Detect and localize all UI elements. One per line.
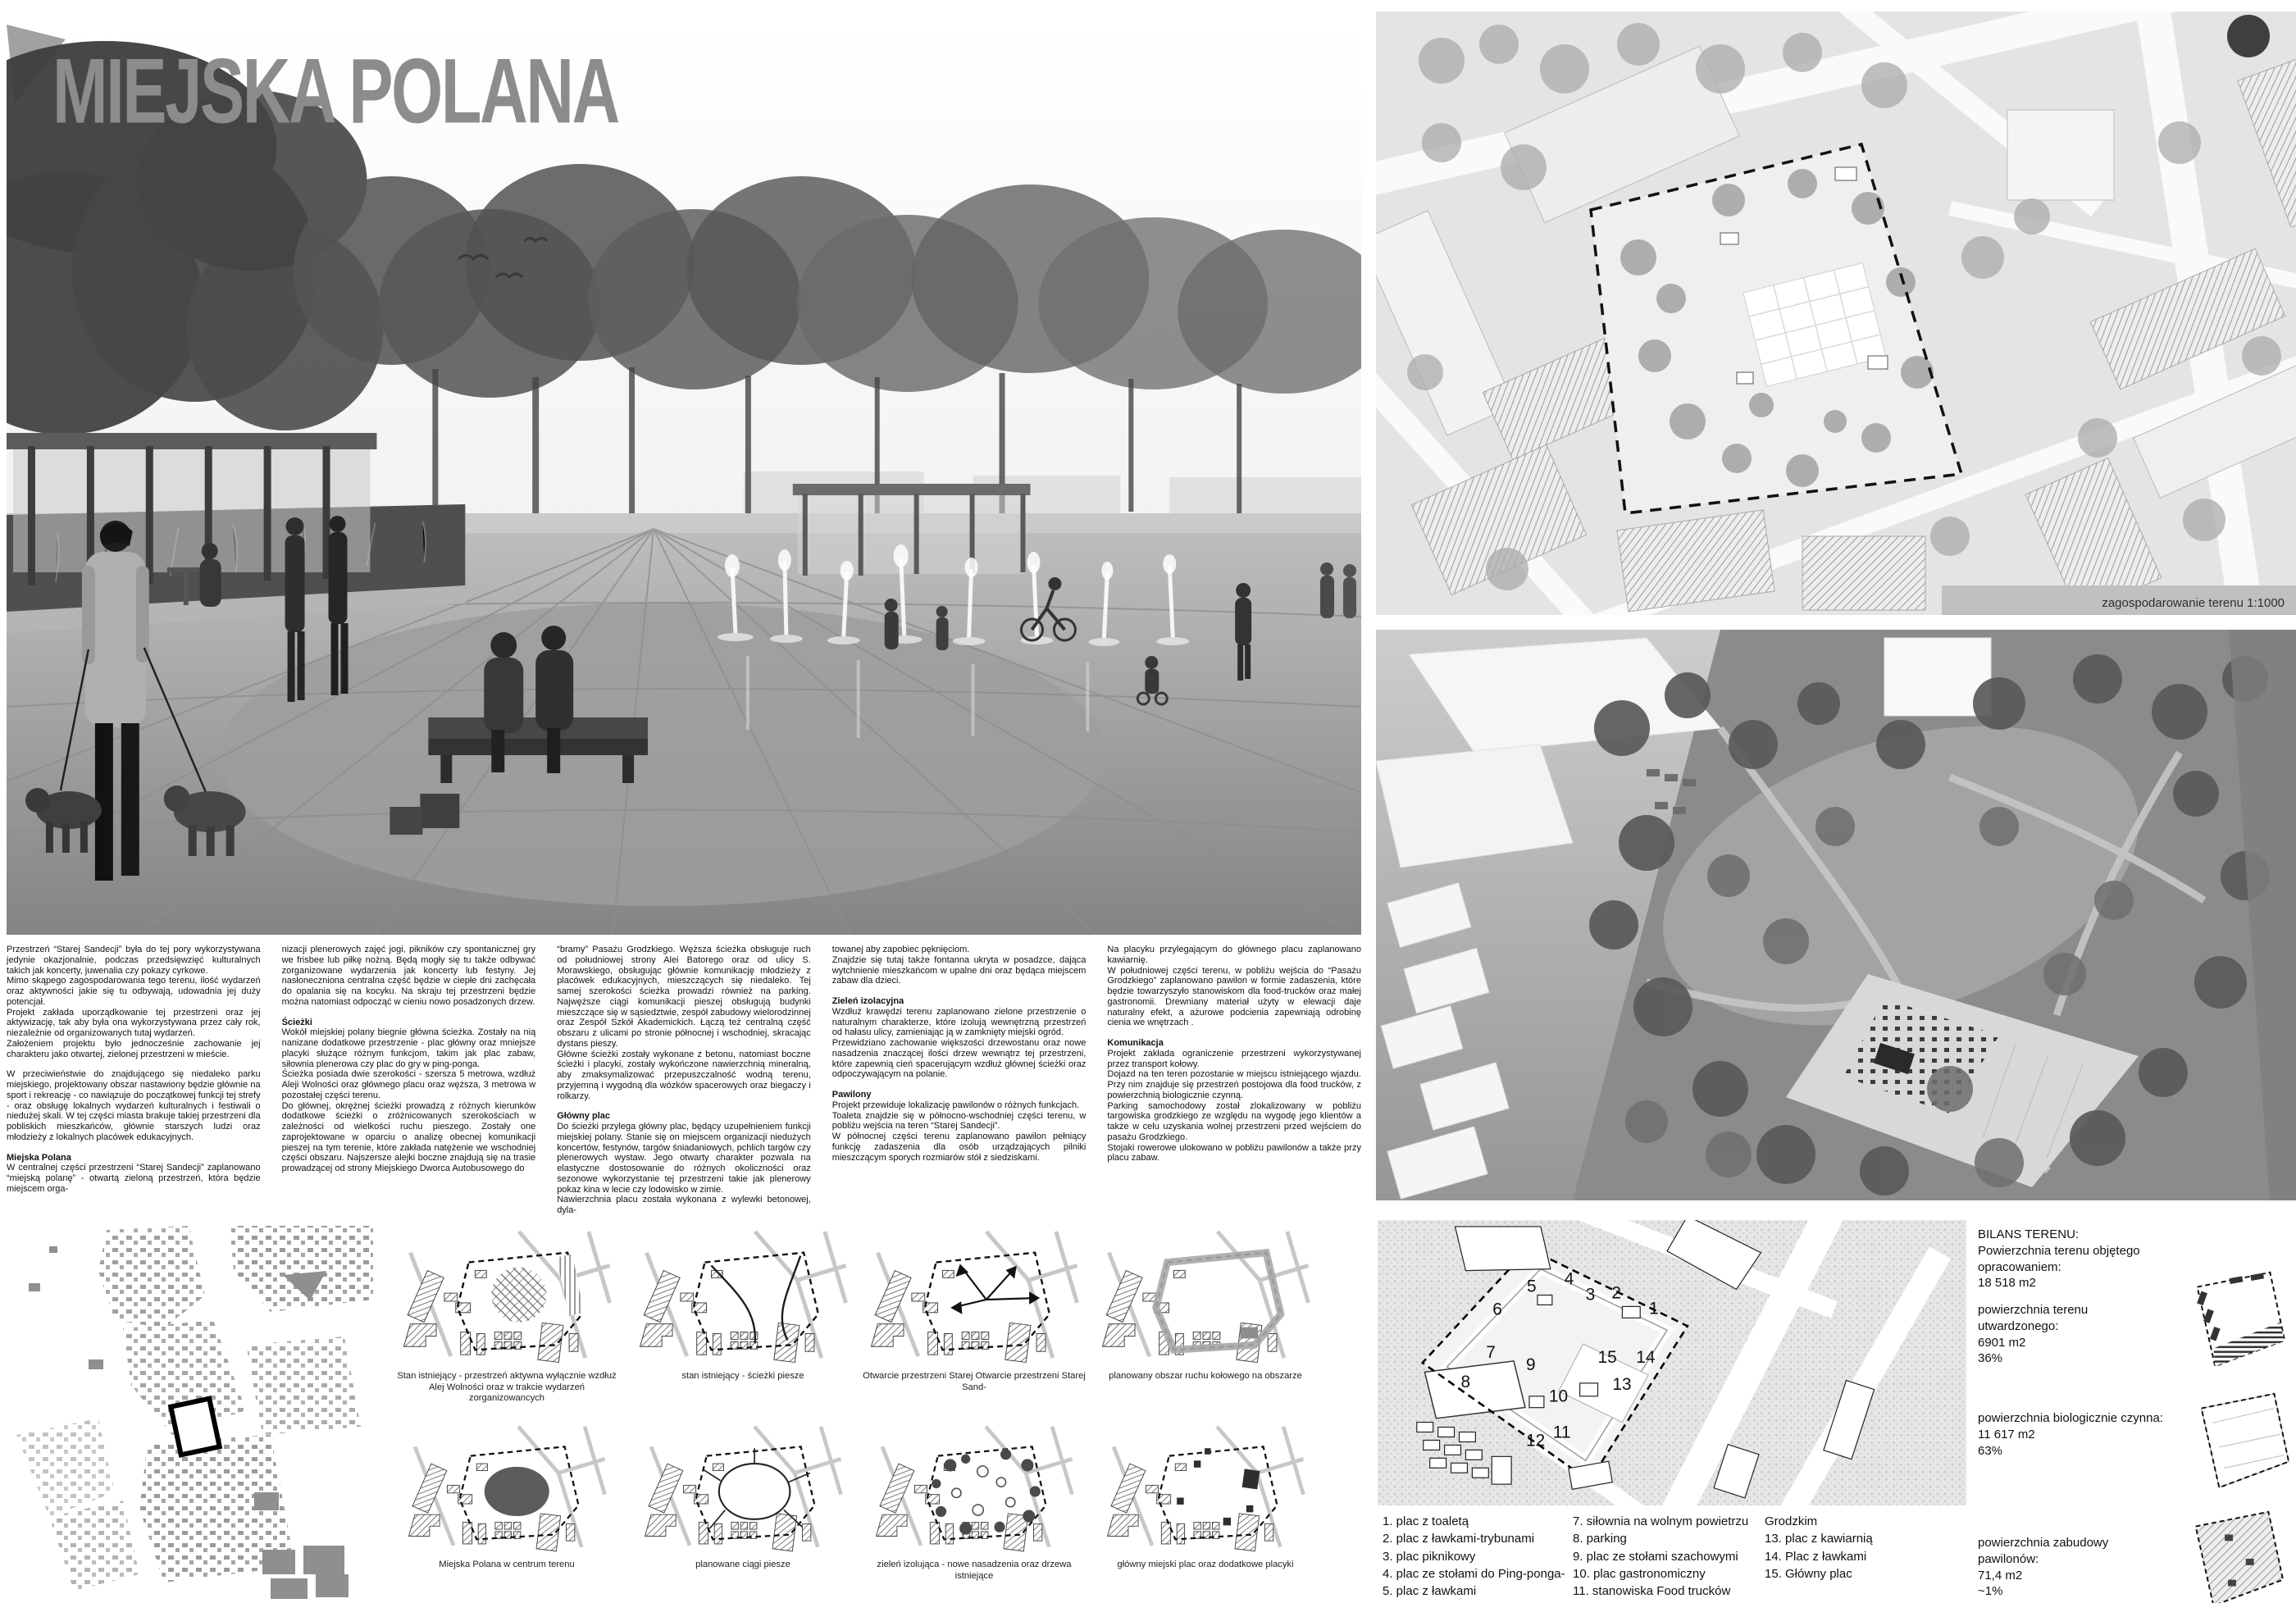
aerial-view <box>1376 630 2296 1200</box>
legend-item: 8. parking <box>1573 1530 1764 1547</box>
site-plan-label: zagospodarowanie terenu 1:1000 <box>2102 596 2285 610</box>
legend-item: 2. plac z ławkami-trybunami <box>1383 1530 1565 1547</box>
paragraph: Na placyku przylegającym do głównego pla… <box>1107 945 1361 966</box>
balance-thumb-green <box>2177 1384 2296 1497</box>
diagram-caption: Miejska Polana w centrum terenu <box>395 1560 618 1571</box>
paragraph: W centralnej części przestrzeni “Starej … <box>7 1163 261 1194</box>
paragraph: W przeciwieństwie do znajdującego się ni… <box>7 1069 261 1142</box>
paragraph: “bramy” Pasażu Grodzkiego. Węższa ścieżk… <box>557 945 811 1050</box>
legend-item: 11. stanowiska Food trucków <box>1573 1583 1764 1600</box>
paragraph: Do ścieżki przylega główny plac, będący … <box>557 1122 811 1195</box>
narrative-column-5: Na placyku przylegającym do głównego pla… <box>1107 945 1361 1223</box>
site-balance-label: powierzchnia zabudowy pawilonów: <box>1978 1535 2168 1568</box>
svg-text:3: 3 <box>1586 1285 1596 1304</box>
legend-item: 7. siłownia na wolnym powietrzu <box>1573 1513 1764 1530</box>
section-heading: Zieleń izolacyjna <box>832 996 1086 1007</box>
paragraph: Nawierzchnia placu została wykonana z wy… <box>557 1195 811 1216</box>
legend-item: 3. plac piknikowy <box>1383 1548 1565 1565</box>
site-balance-paved: powierzchnia terenu utwardzonego: 6901 m… <box>1978 1302 2168 1367</box>
site-balance-label: Powierzchnia terenu objętego opracowanie… <box>1978 1243 2168 1276</box>
diagram-caption: główny miejski plac oraz dodatkowe placy… <box>1094 1560 1317 1571</box>
analysis-diagram-plazas: główny miejski plac oraz dodatkowe placy… <box>1094 1425 1317 1571</box>
legend-item: 9. plac ze stołami szachowymi <box>1573 1548 1764 1565</box>
analysis-diagram-planned-paths: planowane ciągi piesze <box>631 1425 854 1571</box>
site-balance-value: 6901 m2 <box>1978 1335 2168 1351</box>
svg-text:10: 10 <box>1549 1387 1568 1406</box>
paragraph: Stojaki rowerowe ulokowano w pobliżu paw… <box>1107 1143 1361 1164</box>
paragraph: W północnej części terenu zaplanowano pa… <box>832 1132 1086 1163</box>
pavilion-toilet <box>1622 1306 1640 1318</box>
site-marker <box>171 1399 219 1455</box>
section-heading: Pawilony <box>832 1090 1086 1100</box>
paragraph: Mimo skąpego zagospodarowania tego teren… <box>7 976 261 1007</box>
analysis-diagram-existing-active: Stan istniejący - przestrzeń aktywna wył… <box>395 1230 618 1405</box>
diagram-caption: Otwarcie przestrzeni Starej Otwarcie prz… <box>863 1371 1086 1393</box>
section-heading: Miejska Polana <box>7 1153 261 1164</box>
paragraph: Ścieżka posiada dwie szerokości - szersz… <box>282 1069 536 1100</box>
paragraph: Założeniem projektu było jednocześnie za… <box>7 1039 261 1060</box>
site-balance-biologically-active: powierzchnia biologicznie czynna: 11 617… <box>1978 1410 2168 1459</box>
paragraph: nizacji plenerowych zajęć jogi, pikników… <box>282 945 536 1008</box>
legend-column-1: 1. plac z toaletą 2. plac z ławkami-tryb… <box>1383 1513 1565 1603</box>
paragraph: Projekt przewiduje lokalizację pawilonów… <box>832 1100 1086 1111</box>
site-balance-percent: 63% <box>1978 1443 2168 1460</box>
paragraph: Wokół miejskiej polany biegnie główna śc… <box>282 1027 536 1069</box>
paragraph: Wzdłuż krawędzi terenu zaplanowano zielo… <box>832 1007 1086 1038</box>
diagram-graphic <box>1094 1230 1317 1368</box>
legend-item: 14. Plac z ławkami <box>1765 1548 1873 1565</box>
wet-pavement-patch <box>220 603 1105 906</box>
site-balance-value: 18 518 m2 <box>1978 1275 2168 1291</box>
competition-board: MIEJSKA POLANA Przestrzeń “Starej Sandec… <box>0 0 2296 1603</box>
svg-text:12: 12 <box>1526 1431 1545 1450</box>
narrative-column-4: towanej aby zapobiec pęknięciom. Znajdzi… <box>832 945 1086 1223</box>
svg-text:1: 1 <box>1649 1299 1659 1318</box>
legend-item: 4. plac ze stołami do Ping-ponga- <box>1383 1565 1565 1583</box>
page-title: MIEJSKA POLANA <box>52 39 618 145</box>
svg-text:6: 6 <box>1492 1300 1502 1318</box>
section-heading: Ścieżki <box>282 1018 536 1028</box>
paragraph: Do głównej, okrężnej ścieżki prowadzą z … <box>282 1101 536 1174</box>
site-balance-pavilions: powierzchnia zabudowy pawilonów: 71,4 m2… <box>1978 1535 2168 1600</box>
diagram-caption: stan istniejący - ścieżki piesze <box>631 1371 854 1382</box>
diagram-graphic <box>863 1425 1086 1556</box>
analysis-diagram-vehicular: planowany obszar ruchu kołowego na obsza… <box>1094 1230 1317 1382</box>
paragraph: Przestrzeń “Starej Sandecji” była do tej… <box>7 945 261 976</box>
legend-column-2: 7. siłownia na wolnym powietrzu 8. parki… <box>1573 1513 1764 1603</box>
svg-text:5: 5 <box>1527 1277 1537 1296</box>
main-visualization <box>7 25 1361 935</box>
narrative-column-1: Przestrzeń “Starej Sandecji” była do tej… <box>7 945 261 1223</box>
site-balance-label: powierzchnia biologicznie czynna: <box>1978 1410 2168 1427</box>
paragraph: Toaleta znajdzie się w północno-wschodni… <box>832 1111 1086 1132</box>
legend-item: 10. plac gastronomiczny <box>1573 1565 1764 1583</box>
legend-item: 13. plac z kawiarnią <box>1765 1530 1873 1547</box>
site-plan-1-1000: zagospodarowanie terenu 1:1000 <box>1376 11 2296 615</box>
site-balance-label: powierzchnia terenu utwardzonego: <box>1978 1302 2168 1335</box>
legend-item: 5. plac z ławkami <box>1383 1583 1565 1600</box>
site-balance-title: BILANS TERENU: <box>1978 1227 2168 1243</box>
legend-item: 6. plac zabaw <box>1383 1600 1565 1603</box>
svg-text:13: 13 <box>1612 1375 1631 1394</box>
diagram-graphic <box>863 1230 1086 1368</box>
diagram-caption: Stan istniejący - przestrzeń aktywna wył… <box>395 1371 618 1405</box>
svg-text:14: 14 <box>1636 1348 1655 1367</box>
svg-text:11: 11 <box>1553 1423 1571 1441</box>
balance-thumb-pavilions <box>2171 1502 2293 1603</box>
section-heading: Główny plac <box>557 1111 811 1122</box>
legend-item: 15. Główny plac <box>1765 1565 1873 1583</box>
svg-text:9: 9 <box>1526 1355 1536 1374</box>
site-balance-value: 11 617 m2 <box>1978 1427 2168 1443</box>
dark-tree-accent <box>2227 15 2270 57</box>
diagram-graphic <box>395 1425 618 1556</box>
balance-thumb-paved <box>2173 1263 2294 1376</box>
legend-item: 12. plac wejściowy przed Pasażem <box>1573 1600 1764 1603</box>
legend-item: 1. plac z toaletą <box>1383 1513 1565 1530</box>
diagram-graphic <box>631 1425 854 1556</box>
site-balance-percent: 36% <box>1978 1350 2168 1367</box>
diagram-caption: planowany obszar ruchu kołowego na obsza… <box>1094 1371 1317 1382</box>
site-balance-value: 71,4 m2 <box>1978 1568 2168 1584</box>
svg-text:7: 7 <box>1486 1343 1496 1362</box>
paragraph: Parking samochodowy został zlokalizowany… <box>1107 1101 1361 1143</box>
site-balance-overview: BILANS TERENU: Powierzchnia terenu objęt… <box>1978 1227 2168 1291</box>
paragraph: towanej aby zapobiec pęknięciom. <box>832 945 1086 955</box>
analysis-diagram-greenery: zieleń izolująca - nowe nasadzenia oraz … <box>863 1425 1086 1582</box>
diagram-graphic <box>1094 1425 1317 1556</box>
svg-text:2: 2 <box>1611 1283 1621 1302</box>
section-heading: Komunikacja <box>1107 1038 1361 1049</box>
paragraph: Projekt zakłada uporządkowanie tej przes… <box>7 1008 261 1039</box>
svg-text:15: 15 <box>1598 1348 1617 1367</box>
paragraph: Projekt zakłada ograniczenie przestrzeni… <box>1107 1049 1361 1070</box>
diagram-graphic <box>631 1230 854 1368</box>
axonometric-diagram: 1 2 3 4 5 6 7 8 9 10 11 12 13 14 15 <box>1376 1220 1968 1505</box>
legend-item: Grodzkim <box>1765 1513 1873 1530</box>
analysis-diagram-polana: Miejska Polana w centrum terenu <box>395 1425 618 1571</box>
diagram-caption: planowane ciągi piesze <box>631 1560 854 1571</box>
pergola-left <box>7 433 376 585</box>
paragraph: W południowej części terenu, w pobliżu w… <box>1107 966 1361 1029</box>
svg-text:4: 4 <box>1565 1270 1574 1289</box>
paragraph: Znajdzie się tutaj także fontanna ukryta… <box>832 955 1086 986</box>
diagram-caption: zieleń izolująca - nowe nasadzenia oraz … <box>863 1560 1086 1582</box>
narrative-column-2: nizacji plenerowych zajęć jogi, pikników… <box>282 945 536 1223</box>
paragraph: Dojazd na ten teren pozostanie w miejscu… <box>1107 1069 1361 1100</box>
svg-text:8: 8 <box>1460 1373 1470 1391</box>
narrative-columns: Przestrzeń “Starej Sandecji” była do tej… <box>7 945 1361 1223</box>
pavilion-right <box>793 484 1031 576</box>
narrative-column-3: “bramy” Pasażu Grodzkiego. Węższa ścieżk… <box>557 945 811 1223</box>
pavilion-gastro <box>1529 1396 1544 1408</box>
site-balance-percent: ~1% <box>1978 1583 2168 1600</box>
paragraph: Przewidziano zachowanie większości drzew… <box>832 1038 1086 1080</box>
diagram-graphic <box>395 1230 618 1368</box>
location-map <box>0 1222 377 1603</box>
analysis-diagram-existing-paths: stan istniejący - ścieżki piesze <box>631 1230 854 1382</box>
pavilion-cafe <box>1580 1383 1598 1396</box>
analysis-diagram-opening: Otwarcie przestrzeni Starej Otwarcie prz… <box>863 1230 1086 1393</box>
paragraph: Główne ścieżki zostały wykonane z betonu… <box>557 1050 811 1102</box>
legend-column-3: Grodzkim 13. plac z kawiarnią 14. Plac z… <box>1765 1513 1873 1583</box>
